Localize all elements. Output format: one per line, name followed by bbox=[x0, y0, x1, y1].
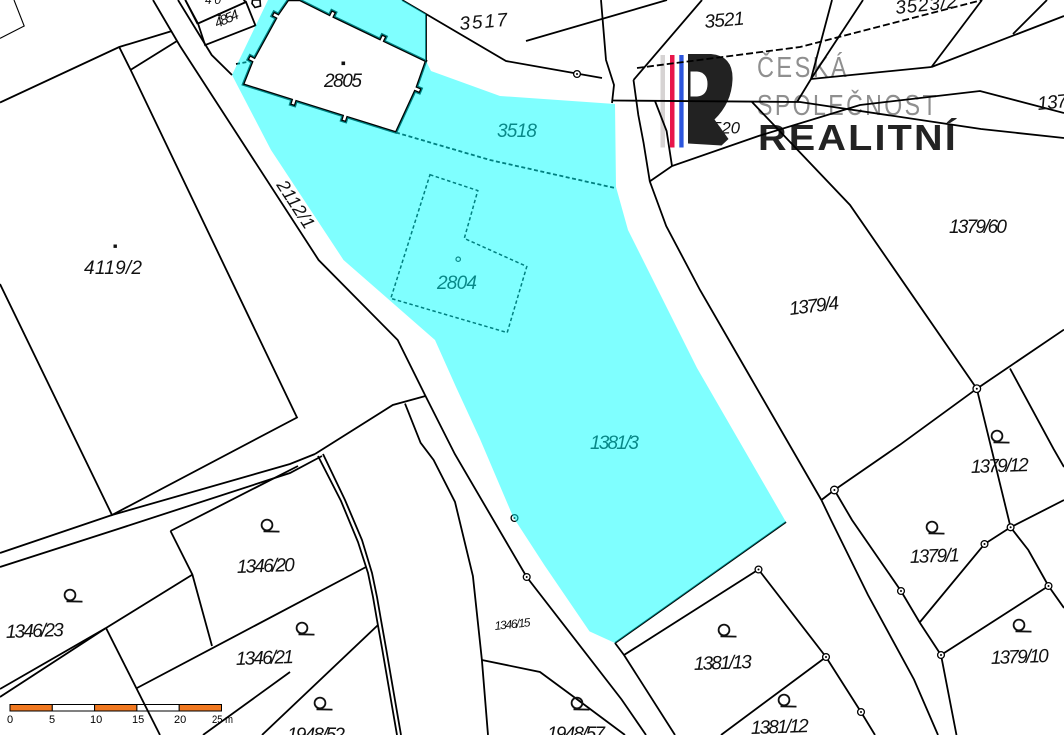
svg-text:1379/: 1379/ bbox=[1036, 89, 1064, 115]
svg-text:1346/20: 1346/20 bbox=[236, 555, 295, 578]
svg-text:1379/10: 1379/10 bbox=[990, 646, 1049, 669]
svg-text:15: 15 bbox=[132, 714, 144, 726]
svg-text:1948/52: 1948/52 bbox=[287, 725, 345, 735]
svg-text:20: 20 bbox=[174, 714, 186, 726]
svg-text:1346/21: 1346/21 bbox=[235, 647, 294, 670]
svg-text:1948/57: 1948/57 bbox=[547, 724, 606, 735]
svg-text:1379/1: 1379/1 bbox=[909, 545, 960, 568]
svg-text:1381/13: 1381/13 bbox=[693, 652, 752, 675]
svg-text:10: 10 bbox=[90, 714, 102, 726]
svg-text:4119/2: 4119/2 bbox=[84, 258, 142, 279]
svg-text:3521: 3521 bbox=[704, 9, 746, 33]
svg-text:0: 0 bbox=[7, 714, 13, 726]
svg-text:REALITNÍ: REALITNÍ bbox=[758, 117, 958, 158]
svg-text:ČESKÁ: ČESKÁ bbox=[757, 50, 849, 84]
svg-text:1379/60: 1379/60 bbox=[949, 217, 1007, 238]
svg-text:1381/12: 1381/12 bbox=[750, 716, 809, 735]
svg-text:1379/12: 1379/12 bbox=[970, 455, 1029, 478]
svg-text:1346/23: 1346/23 bbox=[5, 620, 64, 643]
svg-text:5: 5 bbox=[49, 714, 55, 726]
svg-text:2805: 2805 bbox=[323, 71, 362, 92]
